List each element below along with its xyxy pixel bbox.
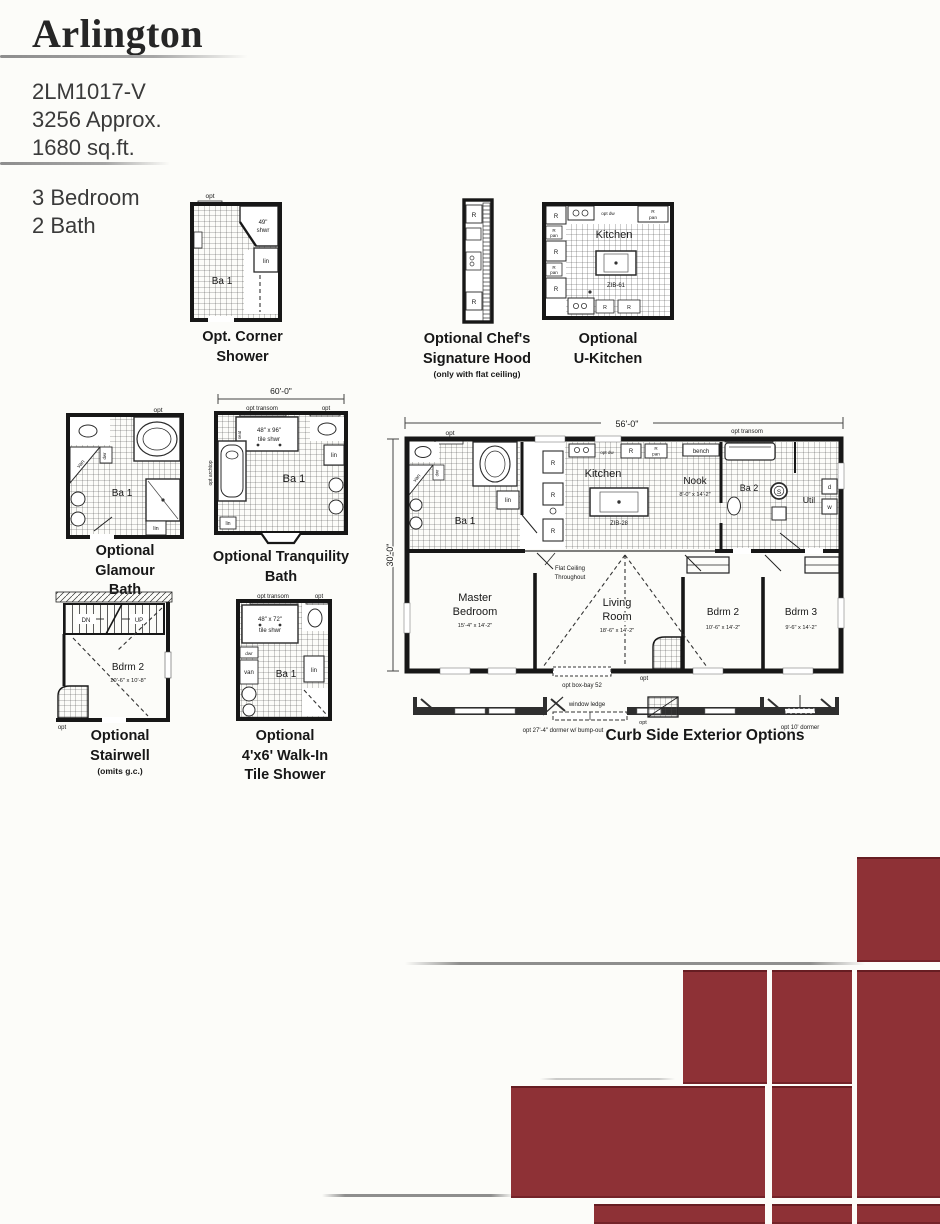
room-label: Bdrm 2 — [112, 662, 145, 673]
door-opening — [733, 548, 751, 554]
living-label-2: Room — [602, 611, 631, 623]
counter-rail — [483, 203, 490, 321]
svg-text:pan: pan — [550, 233, 558, 238]
svg-text:lin: lin — [225, 521, 230, 527]
window — [693, 668, 723, 674]
ba2-label: Ba 2 — [740, 483, 759, 493]
nook-size: 8'-0" x 14'-2" — [679, 492, 710, 498]
kitchen-label: Kitchen — [585, 468, 622, 480]
dot — [279, 444, 282, 447]
drain — [161, 498, 164, 501]
svg-text:bench: bench — [693, 449, 709, 455]
svg-text:pan: pan — [649, 216, 657, 221]
lin-label: lin — [263, 259, 269, 265]
scan-line — [540, 1078, 675, 1080]
svg-text:pan: pan — [652, 452, 660, 457]
decor-tile — [511, 1086, 765, 1198]
sink — [71, 492, 85, 506]
window — [838, 598, 844, 628]
leader-line — [545, 553, 555, 565]
util-label: Util — [803, 495, 815, 505]
door-opening — [102, 717, 126, 723]
svg-text:lin: lin — [331, 453, 337, 459]
shower-size: 48" x 72" — [258, 617, 282, 623]
width-dim: 56'-0" — [616, 419, 639, 429]
tranquility-bath-diagram: 60'-0" opt transom opt 48" x 96" tile sh… — [206, 383, 356, 551]
master-label-1: Master — [458, 592, 492, 604]
range — [466, 252, 481, 270]
svg-text:opt transom: opt transom — [731, 429, 763, 435]
window — [404, 603, 410, 633]
u-kitchen-diagram: R R pan R R pan R opt dw R pan R R Kitch… — [538, 196, 678, 328]
svg-text:R: R — [627, 305, 631, 311]
dot — [279, 624, 282, 627]
kitchen-label: Kitchen — [596, 229, 633, 241]
window — [535, 436, 565, 442]
shower-label: tile shwr — [258, 437, 280, 443]
chefs-hood-caption: Optional Chef's Signature Hood (only wit… — [412, 330, 542, 380]
s-label: S — [777, 489, 782, 496]
svg-text:R: R — [551, 529, 556, 535]
door-swing — [765, 555, 781, 571]
archtop-label: opt archtop — [208, 460, 214, 485]
sink — [329, 478, 343, 492]
window-ledge-label: window ledge — [568, 702, 606, 708]
bdrm3-label: Bdrm 3 — [785, 607, 818, 618]
corner-shower-diagram: opt 49" shwr lin Ba 1 — [182, 188, 302, 328]
existing-wall — [56, 592, 172, 602]
svg-text:lin: lin — [505, 498, 511, 504]
ba2-tub — [725, 443, 775, 460]
svg-text:opt: opt — [445, 430, 454, 437]
sink — [329, 500, 343, 514]
living-size: 18'-6" x 14'-2" — [600, 628, 634, 634]
svg-text:lin: lin — [153, 526, 159, 532]
dn-label: DN — [82, 618, 91, 624]
stairwell-caption: Optional Stairwell (omits g.c.) — [55, 727, 185, 777]
master-label-2: Bedroom — [453, 606, 498, 618]
svg-text:R: R — [651, 209, 655, 215]
scan-line — [405, 962, 865, 965]
stairwell-diagram: DN UP Bdrm 2 10'-6" x 10'-8" opt — [48, 590, 188, 732]
bdrm2-size: 10'-6" x 14'-2" — [706, 625, 740, 631]
glamour-bath-diagram: opt van dwr Ba 1 lin — [60, 403, 190, 543]
tile-shower — [242, 605, 298, 643]
bdrm3-size: 9'-6" x 14'-2" — [785, 625, 816, 631]
decor-tile — [772, 1204, 852, 1224]
shower-size-label: 49" — [259, 220, 268, 226]
svg-text:R: R — [603, 305, 607, 311]
walkin-shower-diagram: opt transom opt 48" x 72" tile shwr dwr … — [230, 590, 338, 728]
ba1-label: Ba 1 — [455, 516, 476, 527]
model-rule — [0, 162, 170, 165]
up-label: UP — [135, 618, 143, 624]
svg-text:van: van — [244, 670, 254, 676]
sink — [243, 704, 255, 716]
sink-bowl — [550, 508, 556, 514]
bath-count: 2 Bath — [32, 212, 140, 240]
bedroom-count: 3 Bedroom — [32, 184, 140, 212]
walkin-caption: Optional 4'x6' Walk-In Tile Shower — [226, 727, 344, 786]
svg-text:w: w — [826, 505, 832, 511]
toilet — [318, 423, 336, 435]
bed-bath-block: 3 Bedroom 2 Bath — [32, 184, 140, 240]
master-size: 15'-4" x 14'-2" — [458, 623, 492, 629]
window — [165, 652, 171, 678]
decor-tile — [594, 1204, 765, 1224]
svg-text:pan: pan — [550, 270, 558, 275]
svg-text:lin: lin — [311, 668, 317, 674]
dormer-window — [785, 709, 815, 714]
dot — [259, 624, 262, 627]
decor-tile — [772, 970, 852, 1084]
svg-text:d: d — [828, 485, 831, 491]
model-sqft: 1680 sq.ft. — [32, 134, 162, 162]
room-label: Ba 1 — [212, 276, 233, 287]
tub — [480, 446, 510, 482]
range — [568, 206, 594, 220]
door-opening — [90, 534, 114, 540]
svg-text:opt dw: opt dw — [600, 450, 614, 455]
shower-label: tile shwr — [259, 628, 281, 634]
svg-text:R: R — [551, 461, 556, 467]
seat-label: seat — [237, 430, 242, 439]
svg-text:R: R — [554, 250, 559, 256]
furnace — [772, 507, 786, 520]
range — [569, 444, 595, 457]
window — [455, 709, 485, 714]
box-bay — [553, 667, 611, 676]
shower-size: 48" x 96" — [257, 428, 281, 434]
model-approx: 3256 Approx. — [32, 106, 162, 134]
window — [489, 709, 515, 714]
window — [440, 668, 470, 674]
sink — [71, 512, 85, 526]
svg-text:dwr: dwr — [245, 651, 253, 656]
decor-tile — [772, 1086, 852, 1198]
dim-label: 60'-0" — [270, 386, 292, 396]
island-dot — [614, 261, 617, 264]
window — [838, 463, 844, 489]
brochure-page: Arlington 2LM1017-V 3256 Approx. 1680 sq… — [0, 0, 940, 1224]
svg-text:opt: opt — [153, 407, 162, 414]
sink — [568, 298, 594, 314]
nook-label: Nook — [683, 476, 707, 487]
page-title: Arlington — [32, 10, 203, 57]
bdrm2-label: Bdrm 2 — [707, 607, 740, 618]
room-size: 10'-6" x 10'-8" — [110, 678, 146, 684]
island-dot — [617, 500, 620, 503]
sink — [242, 687, 256, 701]
main-floor-plan: 56'-0" 30'-0" opt van dwr Ba 1 lin R R — [385, 403, 860, 695]
boxbay-label: opt box-bay 52 — [562, 683, 602, 689]
window — [705, 709, 735, 714]
opt-dw-label: opt dw — [601, 211, 615, 216]
height-dim: 30'-0" — [385, 544, 395, 567]
fireplace — [653, 637, 681, 669]
svg-text:R: R — [551, 493, 556, 499]
svg-text:dwr: dwr — [435, 469, 440, 476]
flat-ceiling-2: Throughout — [555, 575, 586, 581]
r-label: R — [472, 299, 477, 306]
sink — [410, 517, 422, 529]
door-swing — [537, 553, 553, 569]
dot — [588, 290, 591, 293]
shower-label: shwr — [257, 228, 270, 234]
fixture — [194, 232, 202, 248]
svg-text:opt: opt — [640, 676, 649, 682]
r-label: R — [472, 212, 477, 219]
toilet — [415, 447, 431, 458]
svg-text:R: R — [554, 214, 559, 220]
window — [595, 436, 621, 442]
opt-label: opt — [205, 193, 214, 200]
fireplace — [58, 686, 88, 718]
model-block: 2LM1017-V 3256 Approx. 1680 sq.ft. — [32, 78, 162, 162]
toilet — [308, 609, 322, 627]
end-post — [835, 697, 839, 715]
decor-tile — [683, 970, 767, 1084]
cabinet — [466, 228, 481, 240]
living-label-1: Living — [603, 597, 632, 609]
door-opening — [208, 316, 234, 322]
model-number: 2LM1017-V — [32, 78, 162, 106]
room-label: Ba 1 — [283, 473, 306, 485]
scan-line — [322, 1194, 514, 1197]
svg-text:R: R — [629, 449, 634, 455]
corner-shower-caption: Opt. Corner Shower — [180, 328, 305, 367]
decor-tile — [857, 1204, 940, 1224]
dwr-label: dwr — [102, 452, 107, 460]
ba2-sink — [728, 497, 741, 515]
tranquility-caption: Optional Tranquility Bath — [206, 548, 356, 587]
bay-door — [261, 533, 301, 543]
toilet — [79, 425, 97, 437]
decor-tile — [857, 970, 940, 1198]
window — [488, 668, 516, 674]
svg-text:R: R — [554, 287, 559, 293]
sink — [410, 499, 422, 511]
flat-ceiling-1: Flat Ceiling — [555, 566, 585, 572]
door-opening — [805, 548, 823, 554]
title-rule — [0, 55, 248, 58]
decor-tile — [857, 857, 940, 962]
room-label: Ba 1 — [276, 669, 297, 680]
u-kitchen-caption: Optional U-Kitchen — [548, 330, 668, 369]
post — [760, 697, 764, 715]
curb-caption: Curb Side Exterior Options — [585, 726, 825, 746]
chefs-hood-diagram: R R — [452, 196, 502, 331]
room-label: Ba 1 — [112, 488, 133, 499]
island-label: ZIB-61 — [607, 283, 626, 289]
window — [783, 668, 813, 674]
end-post — [413, 697, 417, 715]
dot — [257, 444, 260, 447]
island-label: ZIB-28 — [610, 521, 629, 527]
